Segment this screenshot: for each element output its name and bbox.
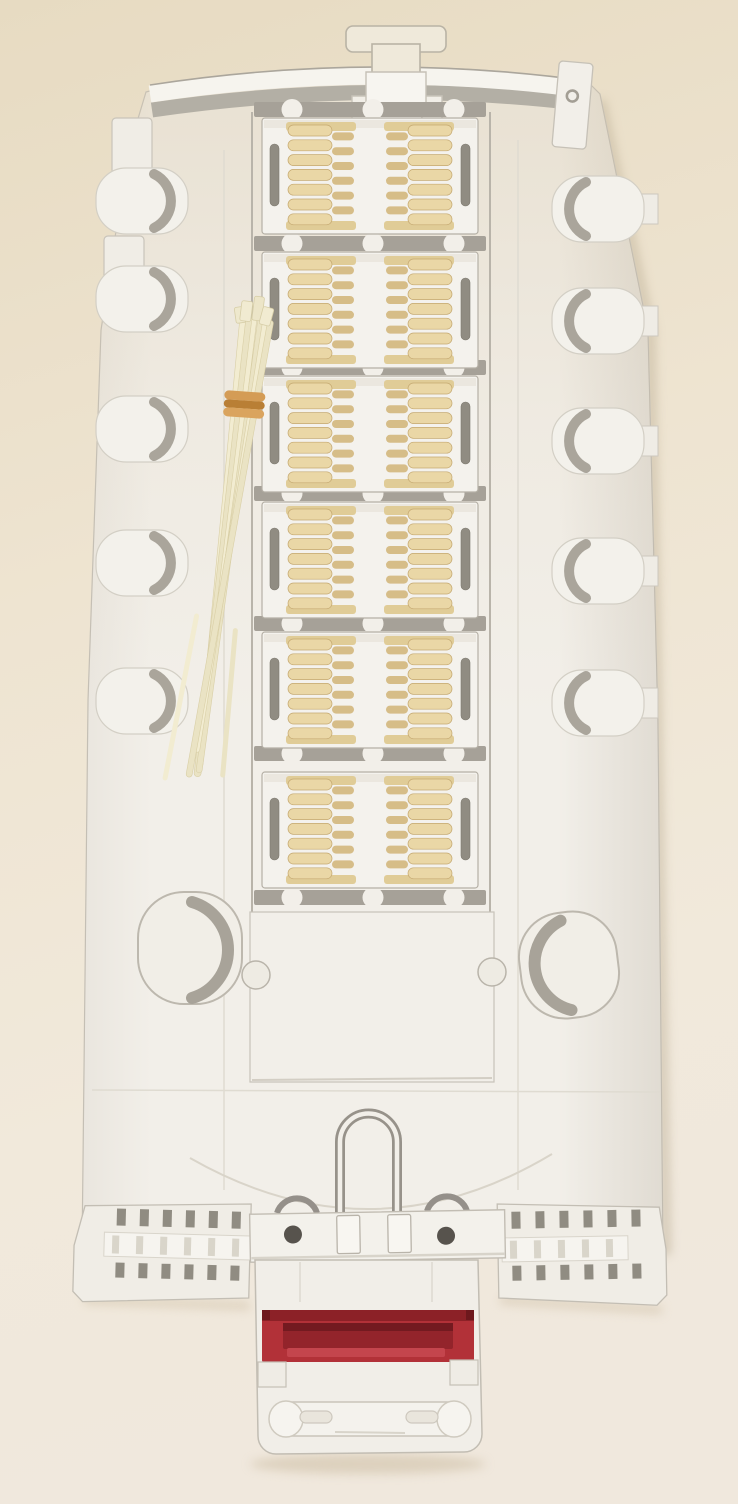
label-holder xyxy=(262,1310,474,1362)
pin-slot-right xyxy=(406,1411,438,1423)
splice-finger xyxy=(408,303,452,314)
scallop-bar xyxy=(254,233,486,254)
splice-tooth xyxy=(386,590,408,598)
splice-finger xyxy=(408,583,452,594)
splice-finger xyxy=(288,199,332,210)
hinge-pin xyxy=(269,1401,471,1437)
splice-finger xyxy=(288,698,332,709)
splice-finger xyxy=(288,318,332,329)
splice-tooth xyxy=(386,464,408,472)
splice-finger xyxy=(288,669,332,680)
splice-tooth xyxy=(332,831,354,839)
splice-tooth xyxy=(386,516,408,524)
splice-tooth xyxy=(332,340,354,348)
bracket-notch-left xyxy=(258,1362,286,1387)
splice-finger xyxy=(408,413,452,424)
module-slot-right xyxy=(461,798,470,860)
splice-finger xyxy=(288,509,332,520)
splice-tooth xyxy=(386,390,408,398)
splice-tooth xyxy=(386,132,408,140)
splice-tooth xyxy=(386,281,408,289)
splice-finger xyxy=(408,868,452,879)
splice-finger xyxy=(288,184,332,195)
module-slot-right xyxy=(461,528,470,590)
splice-finger xyxy=(288,683,332,694)
splice-tooth xyxy=(386,531,408,539)
hinge-bar xyxy=(250,1210,506,1262)
wing-slot xyxy=(186,1210,195,1227)
wing-slot xyxy=(207,1265,216,1280)
splice-tooth xyxy=(386,816,408,824)
wing-slot xyxy=(535,1211,544,1228)
splice-tooth xyxy=(386,147,408,155)
splice-finger xyxy=(408,274,452,285)
splice-tooth xyxy=(386,860,408,868)
splice-tooth xyxy=(386,646,408,654)
splice-tooth xyxy=(386,177,408,185)
splice-tooth xyxy=(386,296,408,304)
splice-finger xyxy=(288,169,332,180)
splice-tooth xyxy=(332,132,354,140)
splice-finger xyxy=(408,398,452,409)
splice-finger xyxy=(288,333,332,344)
splice-finger xyxy=(288,713,332,724)
wing-slot xyxy=(536,1265,545,1280)
splice-finger xyxy=(408,509,452,520)
splice-tooth xyxy=(386,720,408,728)
splice-finger xyxy=(288,639,332,650)
pin-cap-right xyxy=(437,1401,471,1437)
splice-finger xyxy=(408,779,452,790)
splice-holder-module xyxy=(262,632,478,748)
splice-finger xyxy=(408,318,452,329)
perforated-wing-right xyxy=(497,1201,667,1308)
splice-holder-module xyxy=(262,376,478,492)
label-corner-right xyxy=(466,1310,474,1320)
splice-finger xyxy=(408,683,452,694)
label-corner-left xyxy=(262,1310,270,1320)
wing-slot xyxy=(584,1264,593,1279)
splice-tooth xyxy=(332,162,354,170)
label-recess-shadow xyxy=(283,1323,453,1331)
splice-finger xyxy=(288,794,332,805)
splice-finger xyxy=(288,838,332,849)
splice-finger xyxy=(288,809,332,820)
splice-finger xyxy=(288,598,332,609)
splice-tooth xyxy=(386,576,408,584)
splice-finger xyxy=(408,568,452,579)
splice-finger xyxy=(408,472,452,483)
splice-tooth xyxy=(332,546,354,554)
scallop-bar xyxy=(254,99,486,120)
hinge-tab-left xyxy=(337,1215,361,1253)
splice-tooth xyxy=(332,661,354,669)
wing-slot xyxy=(632,1264,641,1279)
splice-tooth xyxy=(386,846,408,854)
splice-finger xyxy=(408,214,452,225)
wing-slot xyxy=(511,1212,520,1229)
splice-finger xyxy=(408,524,452,535)
splice-tooth xyxy=(332,860,354,868)
splice-finger xyxy=(288,654,332,665)
wing-slot xyxy=(184,1264,193,1279)
splice-tooth xyxy=(332,420,354,428)
splice-finger xyxy=(408,838,452,849)
splice-tooth xyxy=(386,831,408,839)
retention-tab-left xyxy=(96,396,188,462)
splice-finger xyxy=(288,539,332,550)
splice-tooth xyxy=(386,162,408,170)
splice-finger xyxy=(408,823,452,834)
splice-tooth xyxy=(386,405,408,413)
splice-finger xyxy=(408,199,452,210)
splice-finger xyxy=(288,583,332,594)
splice-finger xyxy=(408,639,452,650)
splice-finger xyxy=(288,457,332,468)
splice-finger xyxy=(288,125,332,136)
splice-tooth xyxy=(332,816,354,824)
splice-tooth xyxy=(332,281,354,289)
splice-tooth xyxy=(332,464,354,472)
splice-finger xyxy=(408,289,452,300)
module-slot-left xyxy=(270,402,279,464)
module-slot-right xyxy=(461,278,470,340)
splice-tooth xyxy=(386,450,408,458)
splice-finger xyxy=(408,553,452,564)
wing-slot xyxy=(209,1211,218,1228)
splice-tooth xyxy=(386,801,408,809)
wing-slot xyxy=(140,1209,149,1226)
splice-tooth xyxy=(386,435,408,443)
splice-holder-modules xyxy=(262,118,478,888)
stadium-tab-left xyxy=(138,892,242,1004)
retention-tab-left xyxy=(96,168,188,234)
splice-tooth xyxy=(386,326,408,334)
splice-tooth xyxy=(332,786,354,794)
splice-finger xyxy=(288,274,332,285)
wing-slot xyxy=(559,1211,568,1228)
splice-tooth xyxy=(332,691,354,699)
splice-tooth xyxy=(386,206,408,214)
splice-finger xyxy=(408,457,452,468)
wing-slot xyxy=(232,1212,241,1229)
module-slot-right xyxy=(461,658,470,720)
splice-finger xyxy=(288,779,332,790)
bracket-notch-right xyxy=(450,1360,478,1385)
splice-finger xyxy=(288,289,332,300)
splice-finger xyxy=(408,794,452,805)
splice-tooth xyxy=(332,846,354,854)
splice-tooth xyxy=(332,516,354,524)
splice-tooth xyxy=(332,192,354,200)
bottom-bracket xyxy=(255,1260,482,1454)
splice-finger xyxy=(288,348,332,359)
module-slot-left xyxy=(270,798,279,860)
module-slot-left xyxy=(270,528,279,590)
splice-tooth xyxy=(386,786,408,794)
splice-finger xyxy=(288,442,332,453)
splice-tooth xyxy=(332,390,354,398)
splice-holder-module xyxy=(262,772,478,888)
splice-finger xyxy=(408,125,452,136)
splice-finger xyxy=(408,155,452,166)
splice-finger xyxy=(408,539,452,550)
splice-tooth xyxy=(332,450,354,458)
module-slot-right xyxy=(461,402,470,464)
pin-cap-left xyxy=(269,1401,303,1437)
splice-tooth xyxy=(386,192,408,200)
splice-tooth xyxy=(332,206,354,214)
splice-holder-module xyxy=(262,252,478,368)
splice-finger xyxy=(408,669,452,680)
splice-tooth xyxy=(332,405,354,413)
wing-slot xyxy=(560,1265,569,1280)
wing-slot xyxy=(117,1209,126,1226)
plate-notch-left xyxy=(242,961,270,989)
splice-tooth xyxy=(332,706,354,714)
wing-slot xyxy=(608,1264,617,1279)
wing-slot xyxy=(607,1210,616,1227)
splice-finger xyxy=(288,383,332,394)
splice-finger xyxy=(288,472,332,483)
module-slot-left xyxy=(270,144,279,206)
splice-tooth xyxy=(386,266,408,274)
tray xyxy=(73,26,667,1454)
splice-tooth xyxy=(332,720,354,728)
splice-finger xyxy=(288,140,332,151)
splice-finger xyxy=(408,259,452,270)
wing-slot xyxy=(230,1265,239,1280)
lower-plate xyxy=(242,912,506,1082)
splice-finger xyxy=(288,553,332,564)
splice-finger xyxy=(288,214,332,225)
splice-tooth xyxy=(386,340,408,348)
splice-finger xyxy=(288,155,332,166)
wing-slot xyxy=(161,1264,170,1279)
splice-finger xyxy=(408,654,452,665)
retention-tab-left xyxy=(96,530,188,596)
splice-tooth xyxy=(332,646,354,654)
splice-finger xyxy=(408,598,452,609)
module-slot-left xyxy=(270,658,279,720)
wing-slot xyxy=(115,1262,124,1277)
splice-finger xyxy=(408,184,452,195)
splice-finger xyxy=(288,303,332,314)
splice-tooth xyxy=(332,676,354,684)
splice-finger xyxy=(408,333,452,344)
splice-finger xyxy=(288,853,332,864)
splice-holder-module xyxy=(262,502,478,618)
splice-tooth xyxy=(332,177,354,185)
splice-finger xyxy=(288,868,332,879)
wing-slot xyxy=(163,1210,172,1227)
splice-finger xyxy=(408,442,452,453)
splice-tooth xyxy=(332,576,354,584)
splice-finger xyxy=(408,698,452,709)
splice-finger xyxy=(288,524,332,535)
retention-tab-left xyxy=(96,266,188,332)
plate-notch-right xyxy=(478,958,506,986)
splice-tooth xyxy=(332,435,354,443)
splice-tooth xyxy=(332,266,354,274)
wing-slot xyxy=(583,1210,592,1227)
splice-finger xyxy=(288,728,332,739)
perforated-wing-left xyxy=(73,1199,258,1306)
wing-slot xyxy=(138,1263,147,1278)
splice-tooth xyxy=(332,561,354,569)
splice-tooth xyxy=(332,801,354,809)
splice-finger xyxy=(408,140,452,151)
module-slot-right xyxy=(461,144,470,206)
pin-slot-left xyxy=(300,1411,332,1423)
splice-finger xyxy=(288,427,332,438)
photo-fiber-splice-tray xyxy=(0,0,738,1504)
splice-tooth xyxy=(386,546,408,554)
splice-tooth xyxy=(332,296,354,304)
splice-finger xyxy=(288,398,332,409)
splice-finger xyxy=(408,809,452,820)
hinge-tab-right xyxy=(388,1214,412,1252)
rubber-band xyxy=(223,390,266,419)
splice-finger xyxy=(408,853,452,864)
splice-tooth xyxy=(386,420,408,428)
splice-tooth xyxy=(386,661,408,669)
splice-holder-module xyxy=(262,118,478,234)
label-frame-top-shadow xyxy=(262,1310,474,1321)
splice-finger xyxy=(288,413,332,424)
splice-tooth xyxy=(386,706,408,714)
wing-slot xyxy=(512,1266,521,1281)
splice-tooth xyxy=(332,590,354,598)
splice-tooth xyxy=(332,326,354,334)
splice-tooth xyxy=(332,531,354,539)
splice-finger xyxy=(408,383,452,394)
splice-finger xyxy=(408,427,452,438)
label-lip xyxy=(287,1348,445,1357)
splice-tooth xyxy=(386,691,408,699)
top-right-fin xyxy=(552,61,593,150)
splice-finger xyxy=(288,823,332,834)
splice-finger xyxy=(288,259,332,270)
wing-slot xyxy=(631,1210,640,1227)
splice-tooth xyxy=(386,561,408,569)
splice-finger xyxy=(408,713,452,724)
splice-tooth xyxy=(332,311,354,319)
splice-finger xyxy=(408,348,452,359)
splice-tooth xyxy=(386,311,408,319)
scallop-bar xyxy=(254,887,486,908)
splice-tooth xyxy=(386,676,408,684)
splice-tooth xyxy=(332,147,354,155)
splice-finger xyxy=(288,568,332,579)
splice-finger xyxy=(408,728,452,739)
splice-finger xyxy=(408,169,452,180)
